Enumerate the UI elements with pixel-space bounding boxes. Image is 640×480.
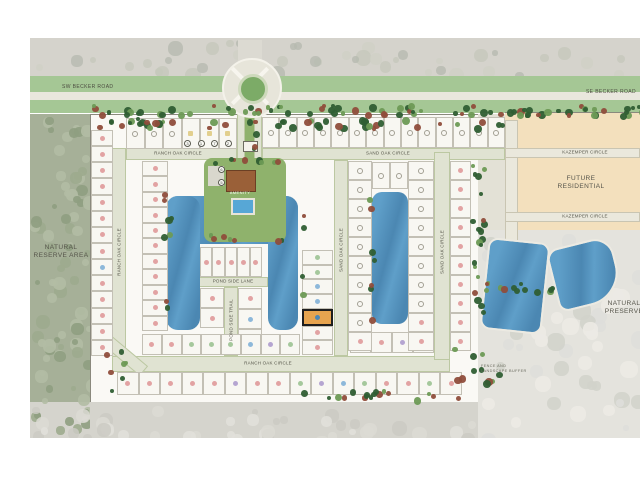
pink-dot-icon <box>100 281 105 286</box>
lot-group-row-south-outer <box>117 372 462 395</box>
texture-blob <box>41 427 48 434</box>
pink-dot-icon <box>216 260 221 265</box>
texture-blob <box>52 204 57 209</box>
purple-dot-icon <box>268 342 273 347</box>
texture-blob <box>398 50 409 61</box>
keyed-note: 3 <box>184 140 191 147</box>
tree-icon <box>544 109 552 117</box>
lot[interactable] <box>225 372 247 395</box>
texture-blob <box>481 433 497 438</box>
texture-blob <box>54 145 65 156</box>
lot[interactable] <box>450 294 471 313</box>
keyed-note: 7 <box>211 140 218 147</box>
texture-blob <box>65 417 74 426</box>
pink-dot-icon <box>255 381 260 386</box>
tree-icon <box>222 122 229 129</box>
lot[interactable] <box>91 162 113 178</box>
pink-dot-icon <box>379 340 384 345</box>
texture-blob <box>540 54 548 62</box>
tree-icon <box>350 389 356 395</box>
tree-icon <box>161 234 168 241</box>
lot[interactable] <box>182 334 202 355</box>
lot[interactable] <box>408 332 434 351</box>
texture-blob <box>78 394 90 407</box>
pink-dot-icon <box>358 339 363 344</box>
texture-blob <box>342 51 351 60</box>
lot[interactable] <box>408 256 434 275</box>
lot[interactable] <box>348 294 372 313</box>
texture-blob <box>165 57 172 64</box>
texture-blob <box>32 407 39 414</box>
tree-icon <box>187 111 193 117</box>
ring-icon <box>493 130 499 136</box>
tree-icon <box>459 375 467 383</box>
lot[interactable] <box>408 199 434 218</box>
pink-dot-icon <box>210 316 215 321</box>
yellow-marker-icon <box>207 131 212 136</box>
lot[interactable] <box>450 218 471 237</box>
pink-dot-icon <box>419 320 424 325</box>
texture-blob <box>380 61 392 73</box>
tree-icon <box>104 352 110 358</box>
texture-blob <box>31 216 43 228</box>
lot[interactable] <box>302 326 333 341</box>
tree-icon <box>352 107 360 115</box>
tree-icon <box>479 243 483 247</box>
tree-icon <box>620 113 627 120</box>
lot[interactable] <box>384 117 401 148</box>
lot[interactable] <box>200 308 224 328</box>
tree-icon <box>431 394 436 399</box>
texture-blob <box>78 167 87 176</box>
fence-buffer-note-line2: LANDSCAPE BUFFER <box>481 369 533 374</box>
pink-dot-icon <box>100 168 105 173</box>
lot[interactable] <box>348 161 372 180</box>
lot[interactable] <box>450 256 471 275</box>
texture-blob <box>183 431 196 438</box>
pink-dot-icon <box>153 274 158 279</box>
texture-blob <box>503 339 514 350</box>
lot[interactable] <box>91 275 113 291</box>
texture-blob <box>206 42 220 56</box>
tree-icon <box>259 160 264 165</box>
texture-blob <box>54 337 60 343</box>
lot[interactable] <box>331 117 348 148</box>
texture-blob <box>370 53 381 64</box>
lot[interactable] <box>203 372 225 395</box>
lot[interactable] <box>280 334 300 355</box>
texture-blob <box>294 42 302 50</box>
lot[interactable] <box>418 117 435 148</box>
lot[interactable] <box>91 308 113 324</box>
tree-icon <box>280 119 286 125</box>
purple-dot-icon <box>319 381 324 386</box>
texture-blob <box>280 416 288 424</box>
pink-dot-icon <box>153 243 158 248</box>
tree-icon <box>371 392 376 397</box>
tree-icon <box>476 227 482 233</box>
lot[interactable] <box>408 237 434 256</box>
texture-blob <box>125 62 134 71</box>
pink-dot-icon <box>458 320 463 325</box>
pink-dot-icon <box>458 168 463 173</box>
lot[interactable] <box>450 161 471 180</box>
texture-blob <box>168 41 183 56</box>
ring-icon <box>357 168 363 174</box>
texture-blob <box>273 418 280 425</box>
texture-blob <box>56 426 65 435</box>
lot[interactable] <box>408 180 434 199</box>
pink-dot-icon <box>100 313 105 318</box>
lot[interactable] <box>348 218 372 237</box>
texture-blob <box>592 341 603 352</box>
pink-dot-icon <box>253 260 258 265</box>
tree-icon <box>583 107 588 112</box>
ring-icon <box>424 130 430 136</box>
tree-icon <box>396 112 403 119</box>
ring-icon <box>418 168 424 174</box>
tree-icon <box>341 111 346 116</box>
tree-icon <box>488 110 492 114</box>
lot[interactable] <box>408 161 434 180</box>
lot[interactable] <box>91 178 113 194</box>
street-label: RANCH OAK CIRCLE <box>117 228 122 276</box>
pink-dot-icon <box>458 301 463 306</box>
pink-dot-icon <box>100 200 105 205</box>
texture-blob <box>623 425 629 431</box>
lot[interactable] <box>397 372 419 395</box>
future-residential-label-line2: RESIDENTIAL <box>545 183 617 191</box>
lot[interactable] <box>390 162 408 189</box>
tree-icon <box>97 125 102 130</box>
purple-dot-icon <box>233 381 238 386</box>
pink-dot-icon <box>406 381 411 386</box>
texture-blob <box>515 72 524 76</box>
tree-icon <box>372 258 377 263</box>
tree-icon <box>471 164 475 168</box>
lot[interactable] <box>268 372 290 395</box>
natural-reserve-label-line2: RESERVE AREA <box>32 252 90 260</box>
blue-dot-icon <box>248 342 253 347</box>
ring-icon <box>418 244 424 250</box>
lot-group-col-u-left <box>200 288 224 328</box>
blue-dot-icon <box>315 299 320 304</box>
pink-dot-icon <box>153 321 158 326</box>
pink-dot-icon <box>458 187 463 192</box>
lot[interactable] <box>201 334 221 355</box>
lot[interactable] <box>450 199 471 218</box>
texture-blob <box>83 196 91 209</box>
becker-road-median-north <box>30 76 640 92</box>
lot[interactable] <box>237 247 249 277</box>
lot[interactable] <box>139 372 161 395</box>
pink-dot-icon <box>153 182 158 187</box>
texture-blob <box>76 185 88 197</box>
lot[interactable] <box>450 275 471 294</box>
lot[interactable] <box>311 372 333 395</box>
lot[interactable] <box>91 130 113 146</box>
ring-icon <box>357 244 363 250</box>
keyed-note: 5 <box>218 179 225 186</box>
natural-preserve-label-line2: PRESERVE <box>594 308 640 316</box>
lot[interactable] <box>142 176 168 191</box>
lot[interactable] <box>212 247 224 277</box>
lot[interactable] <box>142 285 168 300</box>
tree-icon <box>212 104 216 108</box>
tree-icon <box>229 157 234 162</box>
ring-icon <box>302 130 308 136</box>
lot[interactable] <box>241 334 261 355</box>
texture-blob <box>360 426 373 438</box>
north-land-strip <box>30 38 640 76</box>
tree-icon <box>253 120 257 124</box>
yellow-marker-icon <box>225 131 230 136</box>
lot[interactable] <box>348 332 372 351</box>
texture-blob <box>43 355 49 361</box>
lot[interactable] <box>408 313 434 332</box>
tree-icon <box>285 110 291 116</box>
lot[interactable] <box>450 313 471 332</box>
lot[interactable] <box>408 275 434 294</box>
selected-lot[interactable] <box>302 309 333 326</box>
pink-dot-icon <box>153 259 158 264</box>
lot[interactable] <box>142 161 168 176</box>
texture-blob <box>43 230 54 241</box>
lot[interactable] <box>246 372 268 395</box>
lot[interactable] <box>91 243 113 259</box>
blue-dot-icon <box>100 265 105 270</box>
lot-group-row-inner-bottom <box>142 334 300 355</box>
tree-icon <box>152 120 159 127</box>
texture-blob <box>570 406 586 422</box>
lot[interactable] <box>250 247 262 277</box>
tree-icon <box>472 260 478 266</box>
lot[interactable] <box>142 334 162 355</box>
lot[interactable] <box>91 340 113 356</box>
texture-blob <box>68 428 79 438</box>
texture-blob <box>547 333 565 351</box>
pink-dot-icon <box>241 260 246 265</box>
texture-blob <box>82 155 90 163</box>
texture-blob <box>54 351 66 363</box>
lot[interactable] <box>91 227 113 243</box>
future-residential-label: FUTURE RESIDENTIAL <box>545 175 617 191</box>
texture-blob <box>82 259 89 266</box>
lot[interactable] <box>142 254 168 269</box>
texture-blob <box>603 405 614 416</box>
tree-icon <box>498 112 503 117</box>
lot[interactable] <box>91 211 113 227</box>
tree-icon <box>252 144 258 150</box>
green-dot-icon <box>315 270 320 275</box>
roundabout-center-island <box>238 74 268 104</box>
keyed-note: 1 <box>198 140 205 147</box>
pink-dot-icon <box>168 381 173 386</box>
texture-blob <box>72 226 83 237</box>
texture-blob <box>336 420 346 430</box>
tree-icon <box>369 104 376 111</box>
lot[interactable] <box>261 334 281 355</box>
texture-blob <box>42 398 48 404</box>
tree-icon <box>167 232 173 238</box>
ring-icon <box>407 130 413 136</box>
pink-dot-icon <box>153 290 158 295</box>
lot[interactable] <box>200 247 212 277</box>
tree-icon <box>525 112 531 118</box>
texture-blob <box>562 318 579 335</box>
texture-blob <box>412 427 427 438</box>
lot[interactable] <box>450 180 471 199</box>
lot[interactable] <box>91 195 113 211</box>
lot[interactable] <box>348 313 372 332</box>
texture-blob <box>83 434 92 438</box>
texture-blob <box>616 399 624 407</box>
texture-blob <box>310 56 321 67</box>
tree-icon <box>382 389 386 393</box>
lot[interactable] <box>200 288 224 308</box>
lot[interactable] <box>91 291 113 307</box>
blue-dot-icon <box>315 315 320 320</box>
tree-icon <box>381 111 387 117</box>
tree-icon <box>470 219 476 225</box>
tree-icon <box>463 105 470 112</box>
tree-icon <box>592 107 596 111</box>
lot[interactable] <box>302 250 333 265</box>
tree-icon <box>468 112 474 118</box>
pink-dot-icon <box>458 206 463 211</box>
texture-blob <box>558 47 571 60</box>
ring-icon <box>132 131 138 137</box>
texture-blob <box>40 371 45 376</box>
lot[interactable] <box>238 309 262 330</box>
street-label: KAZEMPER CIRCLE <box>562 150 608 155</box>
becker-road-lane <box>30 92 640 100</box>
green-dot-icon <box>228 342 233 347</box>
keyed-note: 6 <box>218 166 225 173</box>
green-dot-icon <box>315 255 320 260</box>
tree-icon <box>243 109 248 114</box>
pink-dot-icon <box>210 296 215 301</box>
lot-group-col-west-outer <box>91 130 113 356</box>
keyed-note: 2 <box>225 140 232 147</box>
texture-blob <box>71 386 76 391</box>
natural-preserve-label-line1: NATURAL <box>594 300 640 308</box>
tree-icon <box>159 112 166 119</box>
ring-icon <box>357 282 363 288</box>
lot[interactable] <box>371 332 392 353</box>
tree-icon <box>178 112 185 119</box>
lot[interactable] <box>91 324 113 340</box>
lot[interactable] <box>162 334 182 355</box>
tree-icon <box>483 380 491 388</box>
lot[interactable] <box>91 146 113 162</box>
ring-icon <box>418 301 424 307</box>
pink-dot-icon <box>449 381 454 386</box>
texture-blob <box>81 125 90 137</box>
lot[interactable] <box>160 372 182 395</box>
texture-blob <box>261 425 275 438</box>
lot[interactable] <box>142 269 168 284</box>
ring-icon <box>459 130 465 136</box>
texture-blob <box>57 265 65 273</box>
green-dot-icon <box>209 342 214 347</box>
texture-blob <box>247 414 259 426</box>
lot[interactable] <box>302 340 333 355</box>
tree-icon <box>289 124 297 132</box>
texture-blob <box>197 63 207 73</box>
tree-icon <box>144 120 149 125</box>
green-dot-icon <box>288 342 293 347</box>
fence-buffer-note: FENCE AND LANDSCAPE BUFFER <box>481 364 533 373</box>
texture-blob <box>581 57 593 69</box>
lot[interactable] <box>450 237 471 256</box>
pink-dot-icon <box>100 329 105 334</box>
texture-blob <box>72 347 82 357</box>
lot[interactable] <box>302 265 333 280</box>
lot[interactable] <box>225 247 237 277</box>
ring-icon <box>357 225 363 231</box>
lot[interactable] <box>408 294 434 313</box>
texture-blob <box>468 421 476 429</box>
tree-icon <box>316 124 323 131</box>
texture-blob <box>45 117 53 125</box>
lot[interactable] <box>302 294 333 309</box>
texture-blob <box>46 385 54 393</box>
pink-dot-icon <box>315 330 320 335</box>
pink-dot-icon <box>100 216 105 221</box>
texture-blob <box>86 326 90 332</box>
texture-blob <box>75 307 88 320</box>
texture-blob <box>48 127 54 133</box>
pink-dot-icon <box>100 297 105 302</box>
site-plan-map[interactable]: SW BECKER ROAD SE BECKER ROAD AMENITY <box>0 0 640 480</box>
lot[interactable] <box>372 162 390 189</box>
texture-blob <box>118 430 129 438</box>
tree-icon <box>455 122 460 127</box>
street-label: RANCH OAK CIRCLE <box>154 151 202 156</box>
pink-dot-icon <box>204 260 209 265</box>
lot[interactable] <box>262 117 279 148</box>
texture-blob <box>631 331 640 349</box>
tree-icon <box>507 109 514 116</box>
tree-icon <box>342 395 348 401</box>
pink-dot-icon <box>384 381 389 386</box>
tree-icon <box>335 394 342 401</box>
texture-blob <box>58 344 64 350</box>
lot[interactable] <box>91 259 113 275</box>
texture-blob <box>632 270 640 285</box>
tree-icon <box>591 112 598 119</box>
texture-blob <box>49 279 56 286</box>
texture-blob <box>226 417 235 426</box>
texture-blob <box>631 395 640 409</box>
natural-reserve-area <box>30 114 90 438</box>
lot[interactable] <box>348 256 372 275</box>
texture-blob <box>56 171 66 181</box>
street-label: POND SIDE TRAIL <box>229 299 234 341</box>
ring-icon <box>378 173 384 179</box>
lot[interactable] <box>238 288 262 309</box>
lot[interactable] <box>182 372 204 395</box>
lot[interactable] <box>142 316 168 331</box>
lot[interactable] <box>408 218 434 237</box>
pink-dot-icon <box>100 152 105 157</box>
texture-blob <box>226 40 233 47</box>
pink-dot-icon <box>153 305 158 310</box>
texture-blob <box>143 59 153 69</box>
texture-blob <box>620 361 637 378</box>
lot[interactable] <box>302 279 333 294</box>
